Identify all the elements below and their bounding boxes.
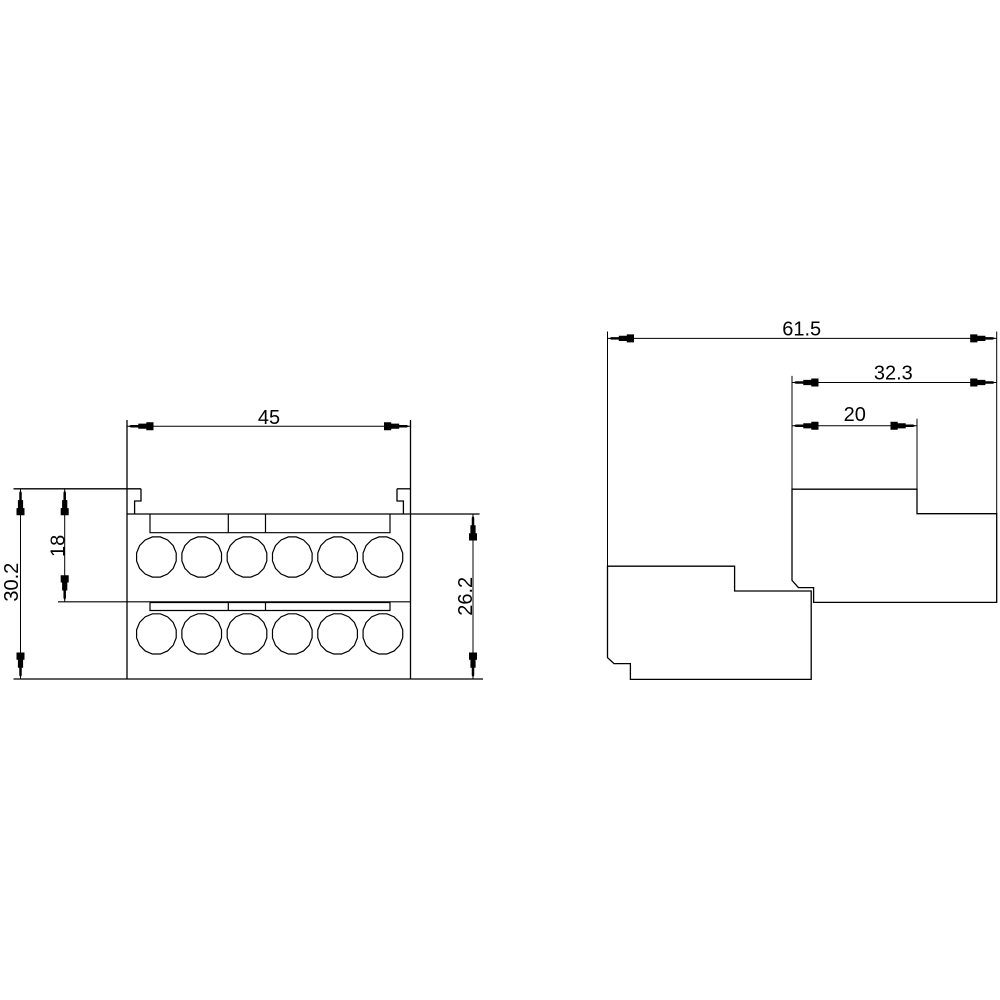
svg-text:18: 18 <box>47 535 69 557</box>
svg-text:32.3: 32.3 <box>874 363 913 385</box>
svg-text:61.5: 61.5 <box>782 319 821 341</box>
svg-text:30.2: 30.2 <box>1 563 23 602</box>
svg-text:20: 20 <box>844 404 866 426</box>
svg-text:45: 45 <box>258 407 280 429</box>
svg-text:26.2: 26.2 <box>455 577 477 616</box>
